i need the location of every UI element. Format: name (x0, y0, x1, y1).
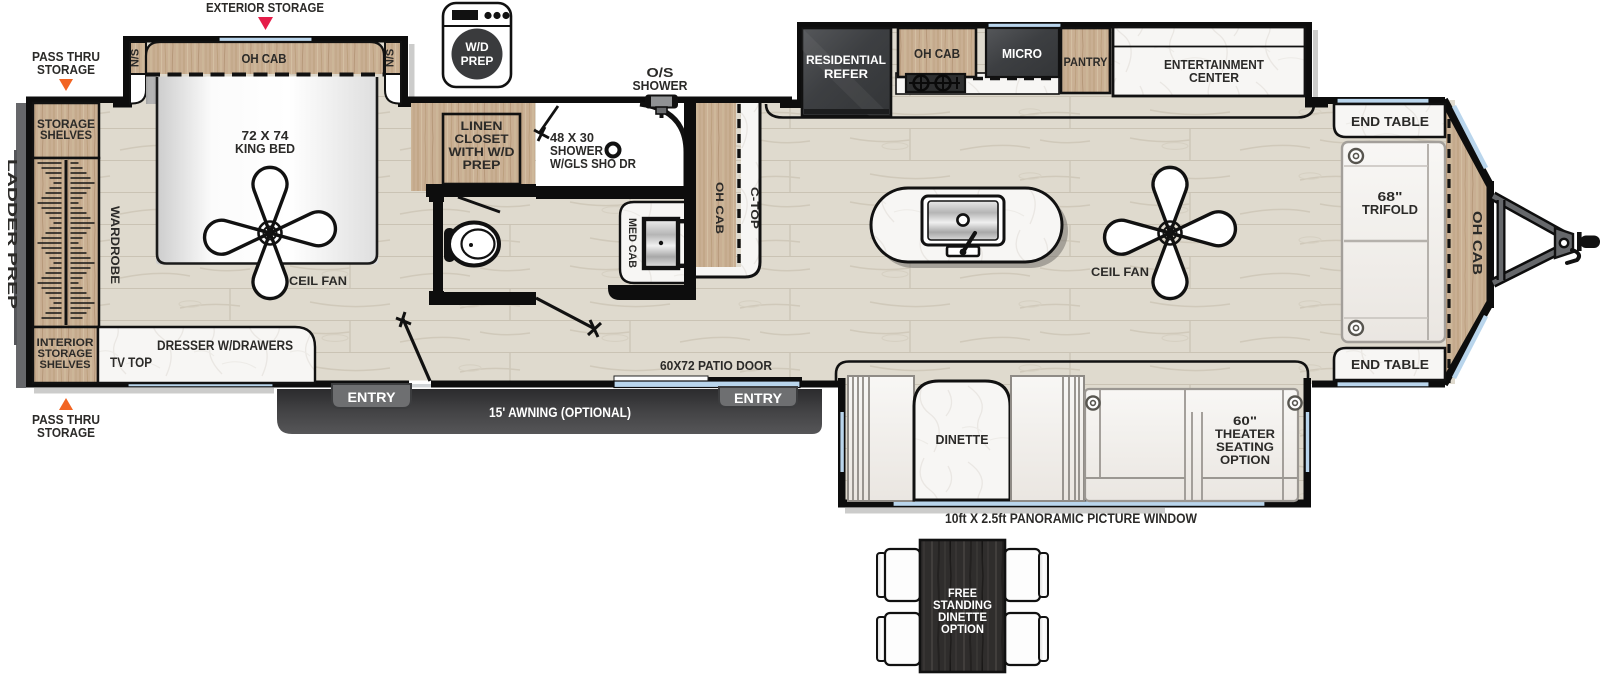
svg-text:O/S: O/S (647, 66, 674, 80)
svg-text:SHOWER: SHOWER (550, 144, 603, 158)
svg-text:CENTER: CENTER (1189, 71, 1239, 85)
svg-text:68": 68" (1378, 190, 1403, 204)
svg-text:DRESSER W/DRAWERS: DRESSER W/DRAWERS (157, 338, 293, 353)
svg-text:STORAGE: STORAGE (37, 426, 95, 440)
svg-text:PREP: PREP (463, 160, 501, 172)
svg-text:CEIL FAN: CEIL FAN (1091, 265, 1149, 279)
svg-text:10ft X 2.5ft PANORAMIC PICTURE: 10ft X 2.5ft PANORAMIC PICTURE WINDOW (945, 511, 1197, 526)
svg-text:SHELVES: SHELVES (40, 359, 91, 371)
svg-text:DINETTE: DINETTE (938, 612, 987, 624)
svg-text:SHOWER: SHOWER (633, 79, 688, 93)
svg-text:STORAGE: STORAGE (37, 63, 95, 77)
svg-text:WITH W/D: WITH W/D (449, 147, 515, 159)
svg-text:WARDROBE: WARDROBE (108, 206, 122, 284)
svg-text:REFER: REFER (824, 67, 868, 81)
svg-text:CLOSET: CLOSET (455, 134, 509, 146)
svg-text:LINEN: LINEN (461, 121, 503, 133)
svg-text:LADDER PREP: LADDER PREP (5, 159, 20, 310)
svg-text:48 X 30: 48 X 30 (550, 131, 594, 145)
svg-text:THEATER: THEATER (1215, 427, 1275, 441)
svg-text:OPTION: OPTION (941, 624, 984, 636)
svg-text:SHELVES: SHELVES (40, 130, 92, 142)
svg-text:CEIL FAN: CEIL FAN (289, 274, 347, 288)
svg-text:ENTRY: ENTRY (734, 391, 782, 406)
svg-text:ENTRY: ENTRY (348, 389, 397, 405)
svg-text:END TABLE: END TABLE (1351, 114, 1429, 129)
svg-text:TRIFOLD: TRIFOLD (1362, 203, 1418, 217)
svg-text:W/GLS SHO DR: W/GLS SHO DR (550, 157, 636, 171)
svg-text:60": 60" (1233, 414, 1257, 428)
svg-text:PREP: PREP (461, 54, 494, 68)
svg-text:KING BED: KING BED (235, 142, 295, 156)
svg-text:MICRO: MICRO (1002, 47, 1042, 61)
svg-text:C-TOP: C-TOP (748, 187, 760, 229)
svg-text:N/S: N/S (385, 49, 397, 67)
svg-text:MED CAB: MED CAB (626, 218, 638, 268)
svg-text:ENTERTAINMENT: ENTERTAINMENT (1164, 58, 1264, 72)
svg-text:RESIDENTIAL: RESIDENTIAL (806, 53, 886, 67)
svg-text:PASS THRU: PASS THRU (32, 413, 100, 427)
svg-text:PASS THRU: PASS THRU (32, 50, 100, 64)
svg-text:72 X 74: 72 X 74 (242, 129, 289, 143)
svg-text:SEATING: SEATING (1216, 440, 1274, 454)
svg-text:OH CAB: OH CAB (914, 47, 960, 61)
svg-text:PANTRY: PANTRY (1064, 55, 1108, 69)
svg-text:OH CAB: OH CAB (1470, 211, 1484, 275)
svg-text:FREE: FREE (948, 588, 977, 600)
svg-text:60X72 PATIO DOOR: 60X72 PATIO DOOR (660, 358, 773, 373)
svg-text:OH CAB: OH CAB (713, 182, 725, 234)
svg-text:OH CAB: OH CAB (242, 52, 287, 66)
svg-text:N/S: N/S (130, 49, 142, 67)
svg-text:OPTION: OPTION (1220, 453, 1270, 467)
svg-text:TV TOP: TV TOP (110, 355, 152, 370)
svg-text:W/D: W/D (465, 40, 489, 54)
svg-text:STANDING: STANDING (933, 600, 992, 612)
svg-text:EXTERIOR STORAGE: EXTERIOR STORAGE (206, 0, 324, 15)
svg-text:15' AWNING (OPTIONAL): 15' AWNING (OPTIONAL) (489, 405, 631, 420)
svg-text:DINETTE: DINETTE (936, 432, 989, 447)
svg-text:END TABLE: END TABLE (1351, 357, 1429, 372)
